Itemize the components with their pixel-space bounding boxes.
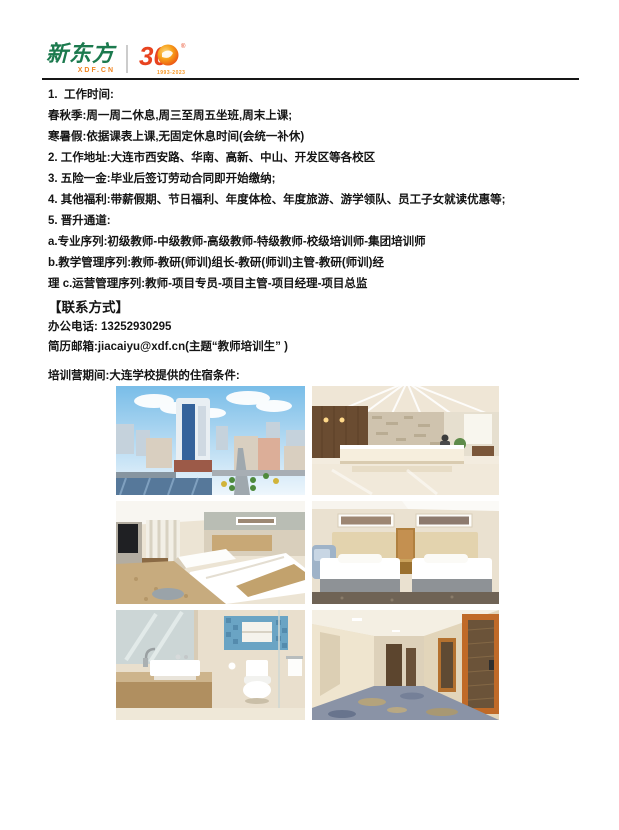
work-address: 2. 工作地址:大连市西安路、华南、高新、中山、开发区等各校区 <box>48 148 583 169</box>
anniversary-years: 1993-2023 <box>157 70 185 76</box>
professional-track: a.专业序列:初级教师-中级教师-高级教师-特级教师-校级培训师-集团培训师 <box>48 232 583 253</box>
logo-divider <box>126 45 128 73</box>
winter-summer-schedule: 寒暑假:依据课表上课,无固定休息时间(会统一补休) <box>48 127 583 148</box>
document-body: 1. 工作时间: 春秋季:周一周二休息,周三至周五坐班,周末上课; 寒暑假:依据… <box>48 85 583 386</box>
accommodation-photo-grid <box>116 386 499 720</box>
city-building-aerial-photo <box>116 386 305 495</box>
spring-autumn-schedule: 春秋季:周一周二休息,周三至周五坐班,周末上课; <box>48 106 583 127</box>
document-page: 新东方 XDF.CN 30 ® 1993-2023 1. 工作时间: 春秋季:周… <box>0 0 619 830</box>
bathroom-photo <box>116 610 305 720</box>
resume-email: 简历邮箱:jiacaiyu@xdf.cn(主题“教师培训生” ) <box>48 337 583 357</box>
office-phone: 办公电话: 13252930295 <box>48 317 583 337</box>
social-insurance: 3. 五险一金:毕业后签订劳动合同即开始缴纳; <box>48 169 583 190</box>
twin-bedroom-angled-photo <box>116 501 305 604</box>
brand-logo: 新东方 XDF.CN 30 ® 1993-2023 <box>46 42 193 76</box>
hotel-lobby-reception-photo <box>312 386 499 495</box>
brand-domain: XDF.CN <box>46 67 115 75</box>
hotel-corridor-photo <box>312 610 499 720</box>
brand-name: 新东方 <box>46 42 115 66</box>
work-hours-heading: 1. 工作时间: <box>48 85 583 106</box>
header-rule <box>42 78 579 80</box>
registered-mark: ® <box>181 43 186 50</box>
contact-section-heading: 【联系方式】 <box>48 298 583 317</box>
promotion-heading: 5. 晋升通道: <box>48 211 583 232</box>
anniversary-30-logo: 30 ® 1993-2023 <box>137 40 193 76</box>
operations-track: 理 c.运营管理序列:教师-项目专员-项目主管-项目经理-项目总监 <box>48 274 583 295</box>
teaching-management-track: b.教学管理序列:教师-教研(师训)组长-教研(师训)主管-教研(师训)经 <box>48 253 583 274</box>
twin-bedroom-front-photo <box>312 501 499 604</box>
xdf-logo: 新东方 XDF.CN <box>46 42 115 75</box>
other-benefits: 4. 其他福利:带薪假期、节日福利、年度体检、年度旅游、游学领队、员工子女就读优… <box>48 190 583 211</box>
accommodation-intro: 培训营期间:大连学校提供的住宿条件: <box>48 366 583 386</box>
